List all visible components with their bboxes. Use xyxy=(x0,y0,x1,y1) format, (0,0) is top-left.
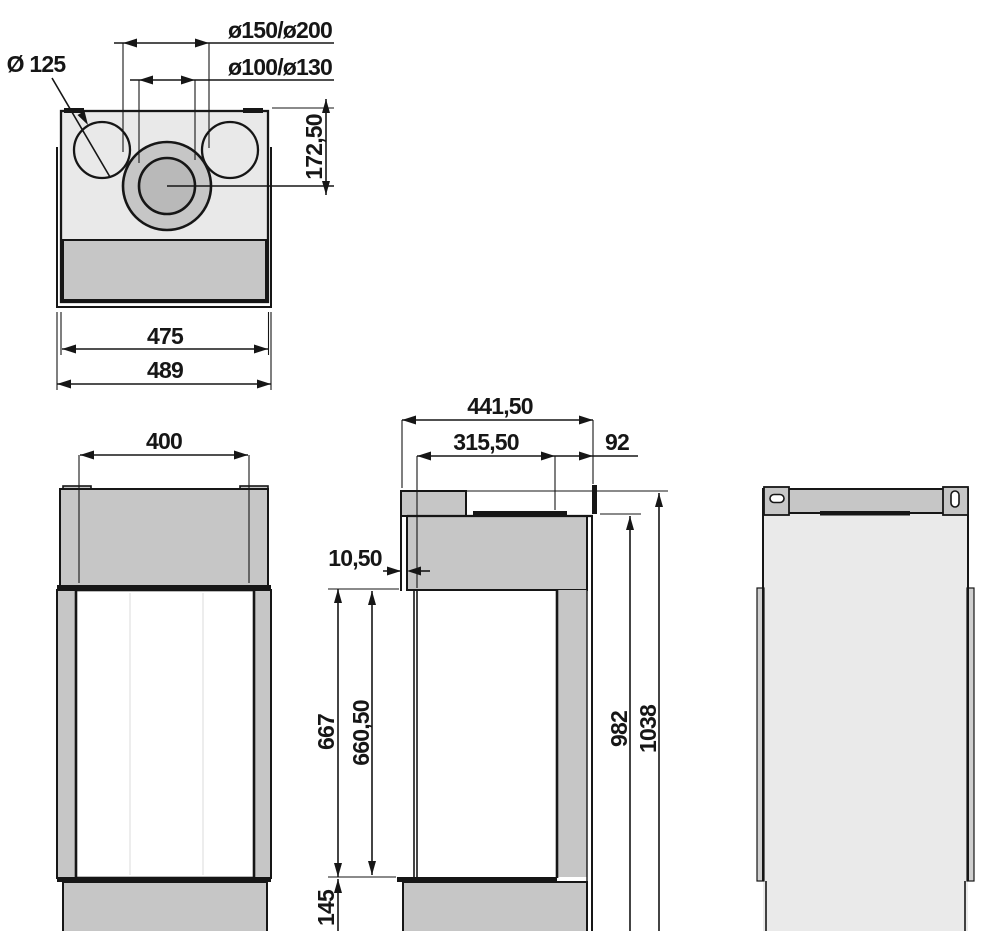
arrowhead xyxy=(417,452,431,461)
arrowhead xyxy=(655,493,663,507)
base-plinth xyxy=(403,882,587,931)
arrowhead xyxy=(57,380,71,389)
front-view: 400 xyxy=(57,428,271,931)
rear-corner-tick xyxy=(592,485,597,514)
arrowhead xyxy=(254,345,268,354)
arrowhead xyxy=(139,76,153,85)
arrowhead xyxy=(80,451,94,460)
arrowhead xyxy=(322,181,330,195)
arrowhead xyxy=(123,39,137,48)
top-lower-band xyxy=(63,240,266,300)
back-view xyxy=(757,487,974,931)
dimension-label: 315,50 xyxy=(453,429,519,455)
top-raised-block xyxy=(401,491,466,516)
dimension-label: 441,50 xyxy=(467,393,533,419)
edge-tick-right xyxy=(243,108,263,113)
arrowhead xyxy=(195,39,209,48)
dimension-label: 982 xyxy=(606,711,632,747)
dimension-label: 1038 xyxy=(635,704,661,753)
dimension-label: 475 xyxy=(147,323,184,349)
dimension-width-inner: 475 xyxy=(61,312,269,355)
dimension-label: 172,50 xyxy=(301,114,327,180)
rear-column xyxy=(557,590,587,877)
dimension-label: ø100/ø130 xyxy=(228,54,332,80)
dimension-label: 400 xyxy=(146,428,182,454)
arrowhead xyxy=(626,516,634,530)
top-view: ø150/ø200 ø100/ø130 Ø 125 172,50 xyxy=(7,17,334,390)
body-upper-section xyxy=(407,516,587,590)
arrowhead xyxy=(579,416,593,425)
arrowhead xyxy=(234,451,248,460)
arrowhead xyxy=(368,591,376,605)
dimension-label: 489 xyxy=(147,357,183,383)
arrowhead xyxy=(387,567,401,576)
edge-tick-left xyxy=(64,108,84,113)
arrowhead xyxy=(62,345,76,354)
drawing-canvas: ø150/ø200 ø100/ø130 Ø 125 172,50 xyxy=(0,0,1000,931)
arrowhead xyxy=(402,416,416,425)
glass-window xyxy=(76,590,254,878)
tab-slot-horizontal xyxy=(770,495,784,503)
arrowhead xyxy=(541,452,555,461)
top-plate-bar xyxy=(473,511,567,517)
arrowhead xyxy=(334,589,342,603)
arrowhead xyxy=(334,863,342,877)
top-cap-panel xyxy=(60,489,268,587)
dimension-flue-depth: 172,50 xyxy=(272,99,334,195)
dimension-label: 145 xyxy=(313,889,339,926)
arrowhead xyxy=(322,99,330,113)
arrowhead xyxy=(368,861,376,875)
top-plate-bar xyxy=(820,511,910,516)
tab-slot-vertical xyxy=(951,491,959,507)
dimension-label: 10,50 xyxy=(328,545,382,571)
dimension-base-height: 145 xyxy=(313,879,342,931)
side-view: 441,50 315,50 92 10,50 667 xyxy=(313,393,668,931)
arrowhead xyxy=(257,380,271,389)
dimension-label: 660,50 xyxy=(348,700,374,766)
dimension-label: 92 xyxy=(605,429,629,455)
arrowhead xyxy=(181,76,195,85)
rear-panel xyxy=(763,513,968,931)
side-strip-left xyxy=(57,590,76,878)
base-plinth xyxy=(63,882,267,931)
dimension-glass-height-inner: 660,50 xyxy=(348,591,376,875)
dimension-label: Ø 125 xyxy=(7,51,67,77)
side-strip-right xyxy=(254,590,271,878)
dimension-label: 667 xyxy=(313,714,339,750)
dimension-label: ø150/ø200 xyxy=(228,17,332,43)
top-band xyxy=(763,489,968,513)
arrowhead xyxy=(579,452,593,461)
technical-drawing: ø150/ø200 ø100/ø130 Ø 125 172,50 xyxy=(0,0,1000,931)
